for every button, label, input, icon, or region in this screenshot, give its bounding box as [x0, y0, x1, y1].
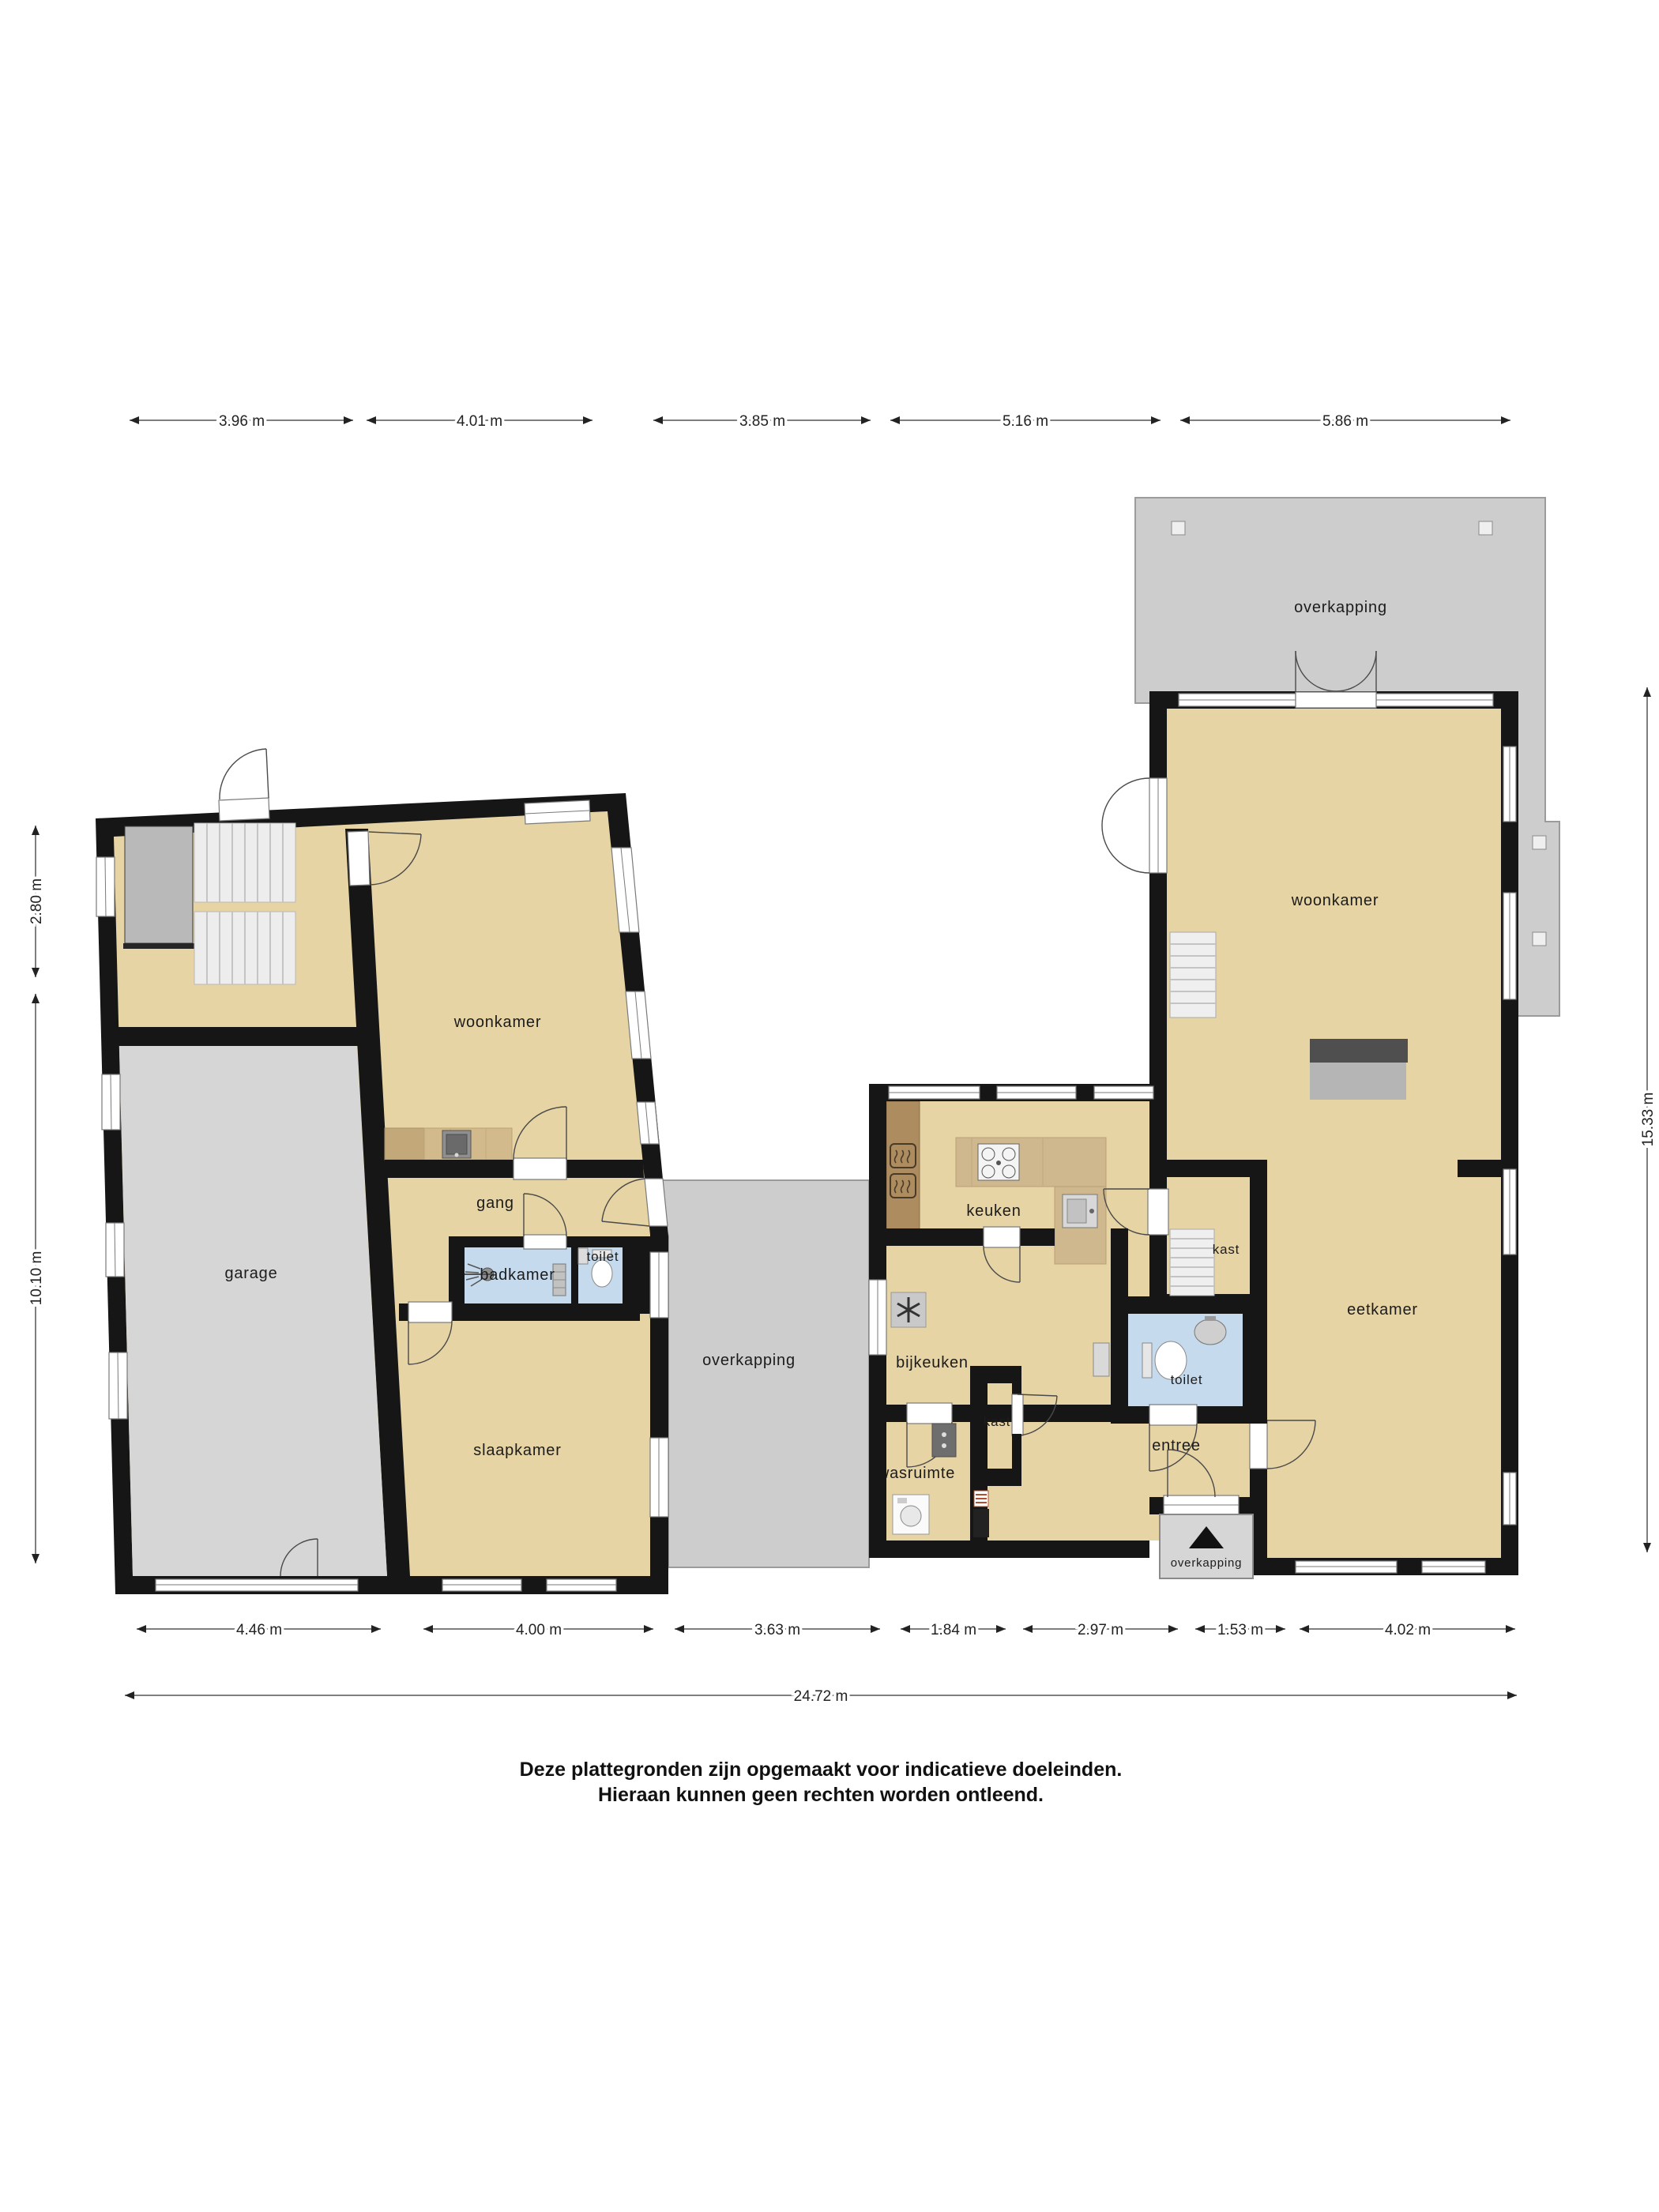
svg-text:1.53 m: 1.53 m — [1217, 1622, 1263, 1638]
dim-bottom-6: 1.53 m — [1195, 1622, 1285, 1638]
dim-top-5: 5.86 m — [1180, 413, 1510, 430]
dim-left-1: 2.80 m — [28, 826, 45, 977]
svg-text:3.85 m: 3.85 m — [739, 413, 785, 430]
fireplace-tv-unit — [1310, 1039, 1408, 1100]
room-overkapping-middle: overkapping — [653, 1180, 869, 1567]
dim-top-3: 3.85 m — [653, 413, 871, 430]
label-toilet-left: toilet — [587, 1249, 619, 1264]
label-bijkeuken: bijkeuken — [896, 1354, 969, 1371]
window-top-left-building — [525, 800, 590, 824]
gas-hob-icon — [978, 1144, 1019, 1180]
disclaimer: Deze plattegronden zijn opgemaakt voor i… — [520, 1759, 1123, 1806]
dim-bottom-7: 4.02 m — [1300, 1622, 1515, 1638]
dimensions-left: 2.80 m 10.10 m — [28, 826, 45, 1563]
wall-stairs-garage — [115, 1027, 361, 1046]
right-building-floor-main — [1167, 709, 1501, 1558]
sink-icon — [1063, 1194, 1097, 1228]
svg-text:2.97 m: 2.97 m — [1078, 1622, 1123, 1638]
label-kast-upper: kast — [1213, 1242, 1240, 1257]
dim-top-4: 5.16 m — [890, 413, 1161, 430]
dim-right-1: 15.33 m — [1640, 687, 1657, 1552]
label-wasruimte: wasruimte — [877, 1465, 955, 1482]
dim-bottom-1: 4.46 m — [137, 1622, 381, 1638]
wall-stub-right — [1458, 1160, 1501, 1177]
label-gang: gang — [476, 1194, 514, 1212]
kitchen-counter-left — [385, 1128, 512, 1160]
staircase-kast — [1170, 1229, 1214, 1296]
svg-text:4.46 m: 4.46 m — [236, 1622, 282, 1638]
dim-left-2: 10.10 m — [28, 994, 45, 1563]
stove-icon — [442, 1130, 471, 1158]
dim-top-1: 3.96 m — [130, 413, 353, 430]
svg-text:3.63 m: 3.63 m — [754, 1622, 800, 1638]
label-slaapkamer: slaapkamer — [473, 1442, 561, 1459]
dim-bottom-4: 1.84 m — [901, 1622, 1006, 1638]
boiler-icon — [932, 1424, 956, 1457]
dim-total-width: 24.72 m — [125, 1688, 1517, 1705]
left-building: garage woonkamer gang — [96, 749, 668, 1594]
svg-text:3.96 m: 3.96 m — [219, 413, 265, 430]
svg-text:4.00 m: 4.00 m — [516, 1622, 562, 1638]
floorplan-canvas: overkapping overkapping — [0, 0, 1659, 2212]
utility-sink-icon — [1093, 1343, 1109, 1376]
ventilation-unit-icon — [891, 1292, 926, 1327]
meter-cupboard-icon — [973, 1491, 989, 1537]
svg-text:4.02 m: 4.02 m — [1385, 1622, 1431, 1638]
svg-text:4.01 m: 4.01 m — [457, 413, 502, 430]
label-badkamer: badkamer — [480, 1266, 555, 1284]
disclaimer-line-1: Deze plattegronden zijn opgemaakt voor i… — [520, 1759, 1123, 1781]
svg-text:5.86 m: 5.86 m — [1322, 413, 1368, 430]
svg-text:2.80 m: 2.80 m — [28, 878, 45, 924]
disclaimer-line-2: Hieraan kunnen geen rechten worden ontle… — [598, 1784, 1044, 1806]
room-overkapping-bottom: overkapping — [1160, 1514, 1253, 1578]
svg-text:1.84 m: 1.84 m — [931, 1622, 976, 1638]
label-keuken: keuken — [966, 1202, 1021, 1220]
label-garage: garage — [224, 1265, 277, 1282]
svg-text:10.10 m: 10.10 m — [28, 1251, 45, 1306]
svg-text:5.16 m: 5.16 m — [1003, 413, 1048, 430]
dimensions-right: 15.33 m — [1640, 687, 1657, 1552]
dim-bottom-2: 4.00 m — [423, 1622, 653, 1638]
staircase-right-building — [1170, 932, 1216, 1018]
dimensions-top: 3.96 m 4.01 m 3.85 m 5.16 m 5.86 m — [130, 413, 1510, 430]
label-woonkamer-right: woonkamer — [1291, 892, 1379, 909]
dimensions-bottom: 4.46 m 4.00 m 3.63 m 1.84 m 2.97 m 1.53 … — [125, 1622, 1517, 1705]
label-overkapping-bottom: overkapping — [1171, 1556, 1243, 1570]
washing-machine-icon — [893, 1495, 929, 1534]
french-door-left-wall — [1102, 778, 1167, 873]
label-toilet-right: toilet — [1171, 1372, 1203, 1387]
room-garage: garage — [119, 1046, 387, 1576]
dim-bottom-5: 2.97 m — [1023, 1622, 1178, 1638]
svg-text:15.33 m: 15.33 m — [1640, 1093, 1657, 1147]
label-woonkamer-left: woonkamer — [453, 1014, 542, 1031]
label-overkapping-top: overkapping — [1294, 599, 1387, 616]
floorplan-page: overkapping overkapping — [0, 0, 1659, 2212]
label-kast-lower: kast — [984, 1414, 1010, 1429]
svg-text:24.72 m: 24.72 m — [794, 1688, 848, 1705]
door-top-entrance — [219, 749, 269, 821]
label-entree: entree — [1152, 1437, 1201, 1454]
label-eetkamer: eetkamer — [1347, 1301, 1418, 1319]
dim-bottom-3: 3.63 m — [675, 1622, 880, 1638]
label-overkapping-middle: overkapping — [702, 1352, 796, 1369]
right-building: woonkamer — [869, 651, 1518, 1575]
dim-top-2: 4.01 m — [367, 413, 592, 430]
